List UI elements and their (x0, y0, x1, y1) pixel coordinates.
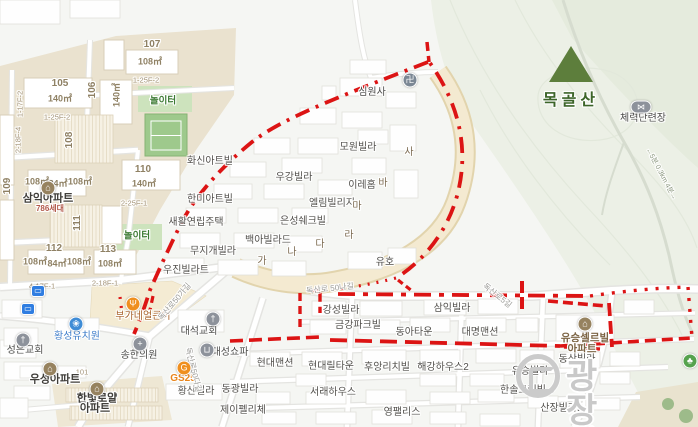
map-label-size: 108㎡ (98, 260, 122, 269)
map-label-bldg: 후앙리치빌 (364, 363, 410, 373)
map-label-road: 독산로50가길 (157, 282, 193, 322)
map-label-bldg: 이레홈 (348, 181, 376, 191)
map-label-trail: ←5분 0.3km 4분→ (644, 147, 677, 201)
map-label-num: 105 (52, 79, 69, 89)
tree-icon-glyph: ♣ (687, 357, 693, 366)
sofa-store-icon-glyph: ⊔ (203, 346, 210, 355)
map-label-num: 110 (135, 165, 151, 175)
fitness-icon[interactable]: ⋈ (631, 101, 652, 114)
map-label-size: 84㎡ (47, 260, 66, 269)
map-label-size: 140㎡ (48, 95, 72, 104)
church-icon-glyph: † (210, 315, 215, 324)
church-icon[interactable]: † (206, 312, 221, 327)
map-label-size: 108㎡ (138, 58, 162, 67)
map-label-bldg: 백아빌라드 (245, 236, 291, 246)
map-label-bldg: 한미아트빌 (187, 195, 233, 205)
watermark-logo-icon (516, 354, 560, 398)
map-label-code: 2-18F-1 (92, 279, 118, 287)
restaurant-icon-glyph: Ψ (129, 300, 137, 309)
map-label-poi: 성은교회 (7, 346, 44, 356)
map-label-aptsub: 786세대 (36, 205, 64, 213)
apartment-icon[interactable]: ⌂ (43, 362, 58, 377)
map-label-code: 1-25F-2 (133, 76, 159, 84)
map-label-brownapt: 아파트 (568, 344, 597, 355)
map-label-bldg: 모원빌라 (340, 143, 377, 153)
temple-icon-glyph: 卍 (405, 76, 414, 85)
apartment-icon[interactable]: ⌂ (578, 317, 593, 332)
bus-stop-icon-glyph: ▭ (34, 287, 42, 295)
map-label-letter: 가 (257, 257, 266, 267)
map-label-apt: 우성아파트 (30, 375, 81, 386)
map-label-letter: 다 (315, 240, 324, 250)
hospital-icon-glyph: + (137, 340, 142, 349)
map-label-bldg: 무지개빌라 (190, 247, 236, 257)
map-label-num: 106 (88, 82, 98, 99)
map-label-size: 108㎡ (23, 258, 47, 267)
map-label-bldg: 제이펠리체 (220, 406, 266, 416)
apartment-icon[interactable]: ⌂ (90, 382, 105, 397)
bus-stop-icon[interactable]: ▭ (31, 285, 45, 297)
map-label-letter: 마 (352, 202, 361, 212)
map-label-letter: 나 (287, 248, 296, 258)
map-label-letter: 라 (344, 231, 353, 241)
map-label-size: 140㎡ (132, 180, 156, 189)
map-label-road: 독산로 50나길 (306, 283, 354, 296)
apartment-icon[interactable]: ⌂ (41, 181, 56, 196)
map-label-green: 놀이터 (124, 231, 150, 241)
map-label-code: 1-17F-2 (16, 91, 24, 117)
bus-stop-icon-glyph: ▭ (24, 305, 32, 313)
map-label-poi: 송한의원 (121, 351, 158, 361)
map-label-num: 112 (46, 244, 62, 254)
map-label-bldg: 금강파크빌 (335, 321, 381, 331)
church-icon[interactable]: † (16, 333, 31, 348)
restaurant-icon[interactable]: Ψ (126, 297, 141, 312)
map-viewport[interactable]: 107105110112113108106109111101108㎡140㎡14… (0, 0, 698, 427)
map-label-blue: 황성유치원 (54, 332, 100, 342)
fitness-icon-glyph: ⋈ (637, 103, 645, 111)
map-label-poi: 대성쇼파 (212, 348, 249, 358)
watermark-text: 광장일보 (566, 360, 598, 427)
map-label-bldg: 해강하우스2 (417, 363, 469, 373)
map-label-size: 140㎡ (113, 83, 122, 107)
map-label-bldg: 우진빌라트 (163, 266, 209, 276)
map-label-green: 놀이터 (150, 96, 176, 106)
map-label-code: 1-25F-2 (44, 113, 70, 121)
map-label-brownapt: 유승셀르빌 (561, 333, 609, 344)
church-icon-glyph: † (20, 336, 25, 345)
map-label-bldg: 동아타운 (396, 328, 433, 338)
map-label-poi: 대석교회 (181, 327, 218, 337)
map-label-code: 2-18F-4 (14, 127, 22, 153)
map-label-bldg: 동광빌라 (222, 385, 259, 395)
convenience-store-icon-glyph: G (180, 364, 187, 373)
map-label-size: 108㎡ (67, 258, 91, 267)
map-label-road: 독산로5길 (481, 282, 513, 309)
convenience-store-icon[interactable]: G (177, 361, 192, 376)
map-label-letter: 사 (404, 148, 413, 158)
kindergarten-icon-glyph: ❀ (72, 320, 80, 329)
tree-icon[interactable]: ♣ (683, 354, 698, 369)
map-label-code: 2-25F-1 (121, 199, 147, 207)
map-label-num: 111 (73, 215, 83, 231)
map-label-bldg: 새활연립주택 (168, 218, 223, 228)
apartment-icon-glyph: ⌂ (47, 365, 52, 374)
map-label-num: 107 (144, 40, 161, 50)
map-label-bldg: 우강빌라 (276, 173, 313, 183)
map-label-bldg: 유호 (376, 258, 394, 268)
map-label-poi: 체력단련장 (620, 114, 666, 124)
hospital-icon[interactable]: + (133, 337, 148, 352)
map-label-poi: 심원사 (358, 88, 386, 98)
map-label-apt: 아파트 (80, 404, 110, 415)
map-label-bldg: 대명맨션 (462, 328, 499, 338)
map-label-bldg: 강성빌라 (323, 306, 360, 316)
map-label-bldg: 삼익빌라 (434, 304, 471, 314)
apartment-icon-glyph: ⌂ (94, 385, 99, 394)
sofa-store-icon[interactable]: ⊔ (200, 343, 215, 358)
map-label-bldg: 은성쉐크빌 (280, 217, 326, 227)
map-label-bldg: 화신아트빌 (187, 157, 233, 167)
map-label-letter: 바 (378, 179, 387, 189)
map-label-size: 108㎡ (68, 178, 92, 187)
temple-icon[interactable]: 卍 (403, 73, 418, 88)
map-label-mountain: 목골산 (543, 93, 599, 109)
map-label-num: 113 (100, 245, 116, 255)
apartment-icon-glyph: ⌂ (45, 184, 50, 193)
apartment-icon-glyph: ⌂ (582, 320, 587, 329)
bus-stop-icon[interactable]: ▭ (21, 303, 35, 315)
map-label-bldg: 현대맨션 (257, 359, 294, 369)
map-label-bldg: 엘림빌리지 (309, 199, 355, 209)
map-label-bldg: 서래하우스 (310, 388, 356, 398)
map-label-bldg: 현대릴타운 (308, 362, 354, 372)
kindergarten-icon[interactable]: ❀ (69, 317, 84, 332)
map-label-num: 108 (65, 132, 75, 149)
map-label-bldg: 영팰리스 (384, 408, 421, 418)
map-label-num: 109 (3, 178, 13, 195)
